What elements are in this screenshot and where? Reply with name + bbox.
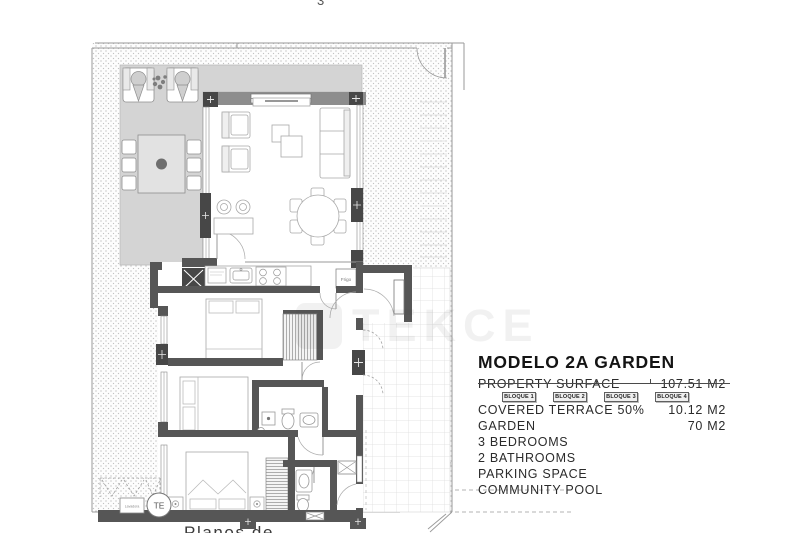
- spec-label: 2 BATHROOMS: [478, 451, 576, 465]
- unit-details-panel: MODELO 2A GARDEN PROPERTY SURFACE 107.51…: [478, 350, 726, 498]
- bedroom-2: [180, 377, 248, 433]
- spec-label: 3 BEDROOMS: [478, 435, 568, 449]
- washer-label: Lavadora: [125, 505, 140, 509]
- spec-label: COMMUNITY POOL: [478, 483, 603, 497]
- surface-measure-line: [478, 383, 730, 384]
- badge-bloque-2: BLOQUE 2: [553, 392, 587, 402]
- badge-bloque-4: BLOQUE 4: [655, 392, 689, 402]
- nightstand-icon: [250, 497, 264, 511]
- wardrobe-icon: [283, 310, 323, 360]
- terrace-dining-set: [122, 135, 201, 193]
- spec-value: 107.51 M2: [661, 377, 726, 391]
- spec-row-parking: PARKING SPACE: [478, 466, 726, 482]
- spec-label: GARDEN: [478, 419, 536, 433]
- spec-row-bathrooms: 2 BATHROOMS: [478, 450, 726, 466]
- lounge-chair-icon: [167, 68, 198, 102]
- water-heater-icon: TE: [147, 493, 171, 517]
- bloque-badges: BLOQUE 1 BLOQUE 2 BLOQUE 3 BLOQUE 4: [478, 392, 726, 402]
- bed-icon: [186, 452, 248, 512]
- washer-icon: Lavadora: [120, 498, 144, 513]
- clipped-caption-text: Planos de: [184, 523, 274, 533]
- bedroom-divider-wall: [168, 358, 283, 366]
- spec-label: COVERED TERRACE 50%: [478, 403, 645, 417]
- badge-bloque-3: BLOQUE 3: [604, 392, 638, 402]
- clipped-dimension-text: 3: [317, 0, 324, 8]
- armchair-icon: [222, 112, 250, 138]
- tv-unit-icon: [253, 98, 310, 106]
- armchair-icon: [222, 146, 250, 172]
- model-title: MODELO 2A GARDEN: [478, 350, 726, 376]
- spec-row-covered-terrace: COVERED TERRACE 50% 10.12 M2: [478, 402, 726, 418]
- spec-value: 70 M2: [688, 419, 726, 433]
- spec-row-property-surface: PROPERTY SURFACE 107.51 M2: [478, 376, 726, 392]
- floor-plan-page: Frigo: [0, 0, 800, 533]
- spec-label: PROPERTY SURFACE: [478, 377, 620, 391]
- spec-row-bedrooms: 3 BEDROOMS: [478, 434, 726, 450]
- spec-row-pool: COMMUNITY POOL: [478, 482, 726, 498]
- spec-label: PARKING SPACE: [478, 467, 587, 481]
- sofa-icon: [320, 108, 350, 178]
- spec-row-garden: GARDEN 70 M2: [478, 418, 726, 434]
- bed-icon: [180, 377, 248, 433]
- fridge-label: Frigo: [341, 277, 352, 282]
- water-heater-label: TE: [154, 501, 165, 511]
- fridge-icon: Frigo: [336, 269, 356, 288]
- badge-bloque-1: BLOQUE 1: [502, 392, 536, 402]
- bed-icon: [206, 299, 262, 361]
- master-bedroom: [168, 452, 288, 512]
- spec-value: 10.12 M2: [668, 403, 726, 417]
- lounge-chair-icon: [123, 68, 154, 102]
